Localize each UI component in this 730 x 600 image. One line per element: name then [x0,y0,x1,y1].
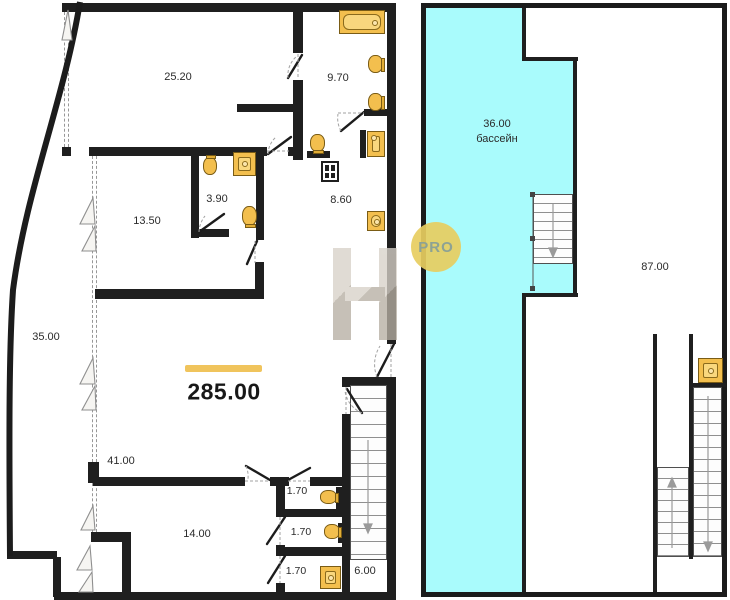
watermark-pro-badge: PRO [411,222,461,272]
window-line [92,483,97,532]
floor-plan: 25.20 9.70 3.90 8.60 13.50 35.00 285.00 … [0,0,730,600]
stairs-up [657,467,689,557]
wall [191,156,199,238]
wall [342,414,350,594]
wall [276,583,285,595]
wall [95,289,264,299]
pool-wall [522,295,526,592]
wall [288,147,303,156]
wall [255,262,264,292]
wall-step [7,551,57,559]
wall [360,130,366,158]
watermark-letter [333,248,397,340]
wall [283,509,345,517]
wall [122,542,131,594]
pool-stairs [533,194,573,264]
wall [310,477,346,486]
room-label-3-90: 3.90 [206,193,227,205]
pool-name-label: бассейн [476,133,518,145]
pool-wall [522,8,526,60]
toilet-fixture [324,524,340,539]
stairs-down [693,387,722,557]
room-label-8-60: 8.60 [330,194,351,206]
toilet-fixture [242,206,257,226]
wall [342,377,350,387]
stair-label-6: 6.00 [354,565,375,577]
total-area-accent-bar [185,365,262,372]
window-post [62,147,71,156]
room-label-9-70: 9.70 [327,72,348,84]
room-label-41: 41.00 [107,455,135,467]
sink-fixture [367,211,385,231]
sink-fixture [233,152,256,176]
bathtub-fixture [339,10,385,34]
wall [91,532,131,542]
wall [293,3,303,53]
stairs-6 [350,385,387,560]
pool-wall [573,57,577,297]
wc2-label: 1.70 [291,526,311,538]
pool-wall [522,57,578,61]
pool-area-label: 36.00 [483,118,511,130]
toilet-fixture [320,490,337,504]
wall [93,477,245,486]
sink-fixture [698,358,723,383]
room-label-25-20: 25.20 [164,71,192,83]
stove-fixture [321,161,339,182]
total-area-label: 285.00 [187,379,260,406]
wall [256,156,264,240]
hall-label-87: 87.00 [641,261,669,273]
wall-step [53,557,61,597]
toilet-fixture [368,55,383,73]
room-label-13-50: 13.50 [133,215,161,227]
toilet-fixture [368,93,383,111]
terrace-label-35: 35.00 [32,331,60,343]
wall [191,229,229,237]
room-label-14: 14.00 [183,528,211,540]
sink-fixture [367,131,385,157]
wc1-label: 1.70 [287,485,307,497]
pool-main [426,8,526,592]
shower-fixture [320,566,341,589]
wall-right [387,377,396,600]
wall [283,547,345,556]
wall [237,104,299,112]
wc3-label: 1.70 [286,565,306,577]
window-line [92,156,97,462]
pool-wall [522,293,578,297]
toilet-fixture [310,134,325,152]
window-line [64,12,69,147]
sink-fixture [203,157,217,175]
